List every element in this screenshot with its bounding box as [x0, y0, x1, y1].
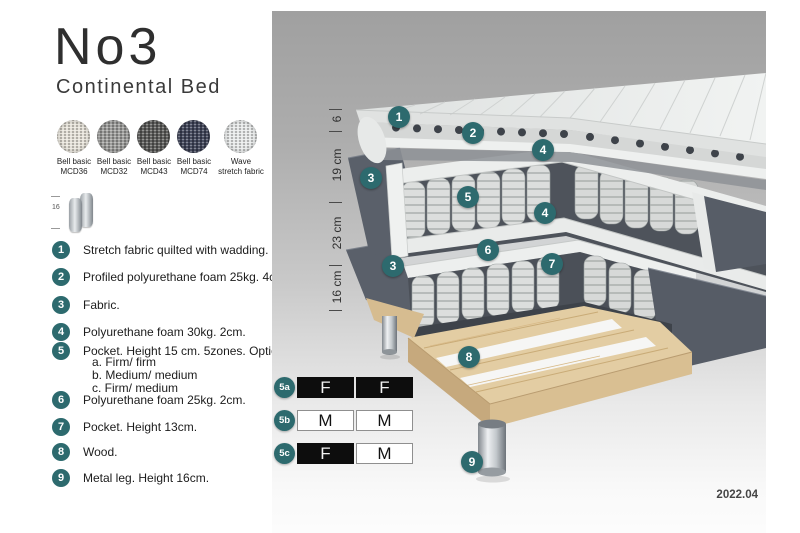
leg-height-icon: 16: [50, 186, 122, 238]
callout-badge: 2: [462, 122, 484, 144]
ruler-label: 23 cm: [330, 203, 344, 263]
spec-sheet-page: { "page": { "title": "No3", "subtitle": …: [0, 0, 800, 533]
callout-badge: 3: [382, 255, 404, 277]
edition-date: 2022.04: [700, 489, 758, 501]
leg-height-label: 16: [52, 204, 60, 211]
fabric-swatch-icon: [224, 120, 257, 153]
callout-badge: 1: [388, 106, 410, 128]
legend-item5-options: a. Firm/ firm b. Medium/ medium c. Firm/…: [92, 356, 197, 395]
callout-badge: 3: [360, 167, 382, 189]
firmness-row: 5a F F: [274, 377, 415, 398]
legend-text: Polyurethane foam 30kg. 2cm.: [83, 325, 246, 339]
callout-badge: 6: [477, 239, 499, 261]
legend-item: 8 Wood.: [52, 443, 292, 461]
legend-text: Fabric.: [83, 298, 120, 312]
callout-badge: 8: [458, 346, 480, 368]
firmness-cell: M: [297, 410, 354, 431]
metal-leg: [476, 420, 510, 483]
callout-badge: 4: [534, 202, 556, 224]
callout-badge: 4: [532, 139, 554, 161]
legend-number-badge: 2: [52, 268, 70, 286]
firmness-row-badge: 5c: [274, 443, 295, 464]
fabric-swatch-icon: [97, 120, 130, 153]
legend-item: 1 Stretch fabric quilted with wadding.: [52, 241, 292, 259]
legend-number-badge: 7: [52, 418, 70, 436]
legend-item: 7 Pocket. Height 13cm.: [52, 418, 292, 436]
firmness-row-badge: 5a: [274, 377, 295, 398]
legend-number-badge: 6: [52, 391, 70, 409]
dimension-tick: [51, 196, 60, 197]
firmness-row-badge: 5b: [274, 410, 295, 431]
firmness-cell: M: [356, 410, 413, 431]
legend-number-badge: 8: [52, 443, 70, 461]
page-title: No3: [54, 20, 161, 75]
firmness-cell: M: [356, 443, 413, 464]
legend-text: Profiled polyurethane foam 25kg. 4cm.: [83, 270, 288, 284]
ruler-label: 16 cm: [330, 257, 344, 317]
legend-item: 4 Polyurethane foam 30kg. 2cm.: [52, 323, 292, 341]
fabric-swatch-icon: [137, 120, 170, 153]
firmness-cell: F: [356, 377, 413, 398]
legend-text: Stretch fabric quilted with wadding.: [83, 243, 268, 257]
firmness-row: 5c F M: [274, 443, 415, 464]
legend-number-badge: 4: [52, 323, 70, 341]
callout-badge: 5: [457, 186, 479, 208]
legend-item: 2 Profiled polyurethane foam 25kg. 4cm.: [52, 268, 292, 286]
legend-item: 9 Metal leg. Height 16cm.: [52, 469, 292, 487]
fabric-swatch-icon: [177, 120, 210, 153]
firmness-row: 5b M M: [274, 410, 415, 431]
legend-number-badge: 5: [52, 342, 70, 360]
firmness-cell: F: [297, 443, 354, 464]
fabric-swatch-icon: [57, 120, 90, 153]
legend-number-badge: 9: [52, 469, 70, 487]
firmness-cell: F: [297, 377, 354, 398]
callout-badge: 7: [541, 253, 563, 275]
legend-number-badge: 3: [52, 296, 70, 314]
page-subtitle: Continental Bed: [56, 76, 221, 99]
legend-item: 6 Polyurethane foam 25kg. 2cm.: [52, 391, 292, 409]
fabric-swatch-label: Wavestretch fabric: [214, 157, 268, 176]
legend-item: 3 Fabric.: [52, 296, 292, 314]
legend-number-badge: 1: [52, 241, 70, 259]
legend-text: Metal leg. Height 16cm.: [83, 471, 209, 485]
legend-text: Pocket. Height 13cm.: [83, 420, 197, 434]
metal-leg-icon: [69, 198, 82, 232]
ruler-label: 19 cm: [330, 135, 344, 195]
callout-badge: 9: [461, 451, 483, 473]
fabric-swatch-label: Bell basicMCD74: [167, 157, 221, 176]
legend-text: Polyurethane foam 25kg. 2cm.: [83, 393, 246, 407]
dimension-tick: [51, 228, 60, 229]
legend-text: Wood.: [83, 445, 117, 459]
